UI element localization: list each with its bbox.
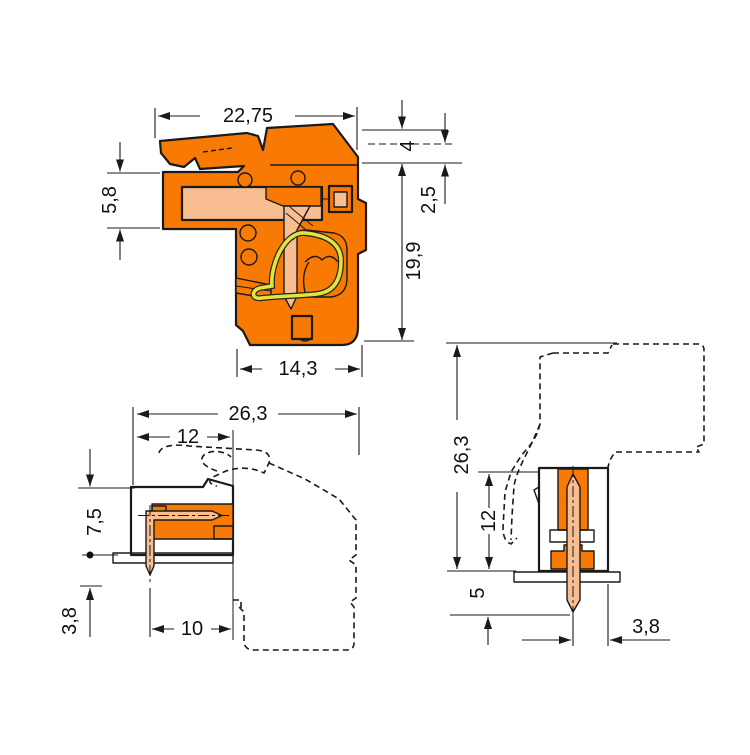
dim-label-base-depth: 14,3 — [279, 358, 318, 380]
housing-hole — [291, 171, 305, 185]
slot-step — [266, 187, 321, 206]
dim-label-pin-to-face: 10 — [181, 618, 203, 640]
ref-lines — [446, 343, 617, 646]
header-cavity — [152, 504, 233, 539]
view-header-vertical: 26,3 12 5 3,8 — [446, 343, 704, 646]
view-header-side: 26,3 12 7,5 3,8 10 — [59, 403, 359, 650]
housing-body — [160, 124, 366, 345]
housing-hole — [240, 225, 256, 241]
housing-outline — [160, 124, 366, 345]
housing-hole — [241, 249, 257, 265]
dim-label-entry-height: 5,8 — [99, 186, 121, 214]
dim-label-shroud-depth: 12 — [177, 426, 199, 448]
solder-pin-angled — [146, 511, 222, 575]
mating-connector-ghost-lever-inner — [511, 424, 540, 540]
header-body-vertical — [503, 344, 704, 622]
dim-label-pin-below-board: 5 — [467, 587, 489, 598]
dim-label-pin-below-board: 3,8 — [59, 607, 81, 635]
bottom-notch — [292, 316, 312, 339]
connector-dimension-drawing: 22,75 4 2,5 19,9 5,8 14,3 — [0, 0, 750, 750]
dim-label-back-step: 4 — [397, 140, 419, 151]
dim-label-total-height: 26,3 — [451, 436, 473, 475]
dim-label-shroud-height: 12 — [478, 510, 500, 532]
mating-connector-ghost-curl — [202, 451, 231, 471]
dim-label-total-depth: 26,3 — [229, 403, 268, 425]
dim-label-height-above-board: 7,5 — [84, 508, 106, 536]
dim-label-body-height: 19,9 — [403, 242, 425, 281]
mating-connector-ghost-right — [608, 344, 704, 467]
dim-label-latch-offset: 2,5 — [418, 186, 440, 214]
dim-label-pin-to-edge: 3,8 — [632, 616, 660, 638]
mating-connector-ghost-top — [553, 345, 612, 353]
technical-drawing-page: 22,75 4 2,5 19,9 5,8 14,3 — [0, 0, 750, 750]
test-port-inner — [334, 192, 347, 207]
dim-label-total-depth: 22,75 — [223, 105, 273, 127]
mating-connector-ghost-left — [503, 353, 553, 544]
mating-connector-ghost-corner — [233, 600, 241, 611]
mating-connector-ghost-body — [236, 463, 356, 650]
housing-hole — [238, 173, 252, 187]
view-side-section: 22,75 4 2,5 19,9 5,8 14,3 — [99, 100, 462, 380]
datum-dot — [87, 552, 94, 559]
